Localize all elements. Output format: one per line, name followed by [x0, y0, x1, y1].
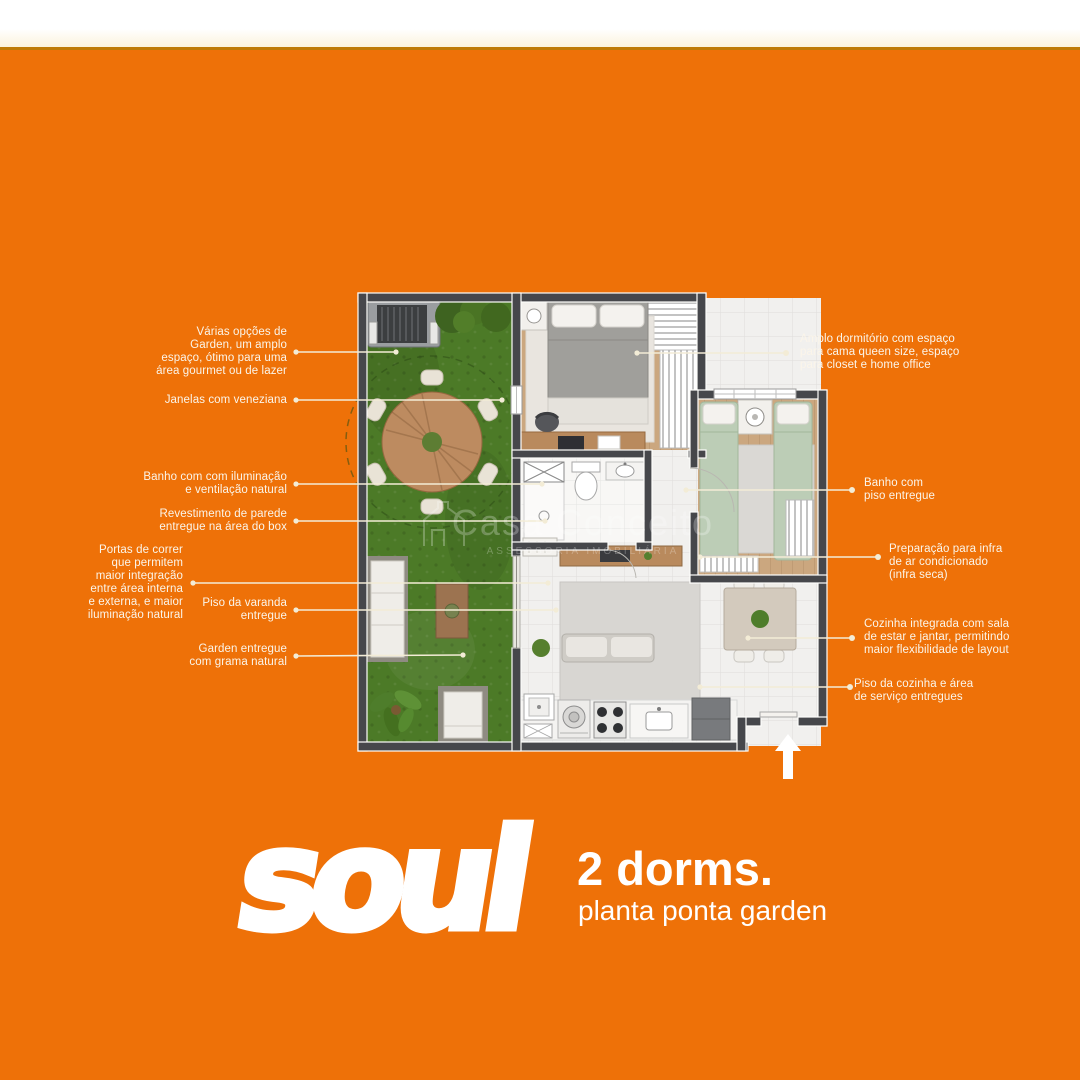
fridge: [692, 698, 730, 740]
bedroom1: [521, 302, 697, 455]
bathroom-sink: [606, 462, 644, 480]
living-plant: [532, 639, 550, 657]
kitchen: [521, 694, 737, 740]
garden-grass: [360, 299, 515, 745]
stove: [594, 702, 626, 738]
annotation-piso-varanda: Piso da varanda entregue: [77, 597, 287, 623]
annotation-revestimento: Revestimento de parede entregue na área …: [77, 508, 287, 534]
annotation-piso-cozinha: Piso da cozinha e área de serviço entreg…: [854, 678, 1080, 704]
floor-plan-graphic: [0, 0, 1080, 1080]
bedroom1-bed: [548, 302, 648, 424]
garden-sofa: [366, 556, 408, 662]
annotation-garden-options: Várias opções de Garden, um amplo espaço…: [77, 326, 287, 378]
twin-bed-left: [700, 402, 738, 560]
soul-logo: soul: [229, 812, 533, 950]
sofa: [562, 634, 654, 662]
washing-machine: [558, 700, 590, 738]
dining-table: [724, 578, 796, 662]
annotation-garden-grama: Garden entregue com grama natural: [77, 643, 287, 669]
garden-armchair: [438, 686, 488, 744]
grill: [368, 301, 440, 347]
plan-name: planta ponta garden: [578, 896, 827, 927]
annotation-amplo-dormitorio: Amplo dormitório com espaço para cama qu…: [800, 333, 1030, 372]
annotation-cozinha-integrada: Cozinha integrada com sala de estar e ja…: [864, 618, 1080, 657]
bedroom1-nightstand: [521, 302, 547, 330]
dorms-headline: 2 dorms.: [577, 845, 773, 892]
bedroom2-nightstand: [738, 400, 772, 434]
annotation-banho-iluminacao: Banho com com iluminação e ventilação na…: [77, 471, 287, 497]
bedroom2: [700, 400, 814, 572]
annotation-infra-ar: Preparação para infra de ar condicionado…: [889, 543, 1080, 582]
kitchen-sink: [630, 704, 688, 738]
garden-bench: [436, 584, 468, 638]
entrance-door: [760, 712, 797, 717]
annotation-janelas: Janelas com veneziana: [77, 394, 287, 407]
annotation-banho-piso: Banho com piso entregue: [864, 477, 1080, 503]
laundry-tank: [524, 694, 554, 738]
